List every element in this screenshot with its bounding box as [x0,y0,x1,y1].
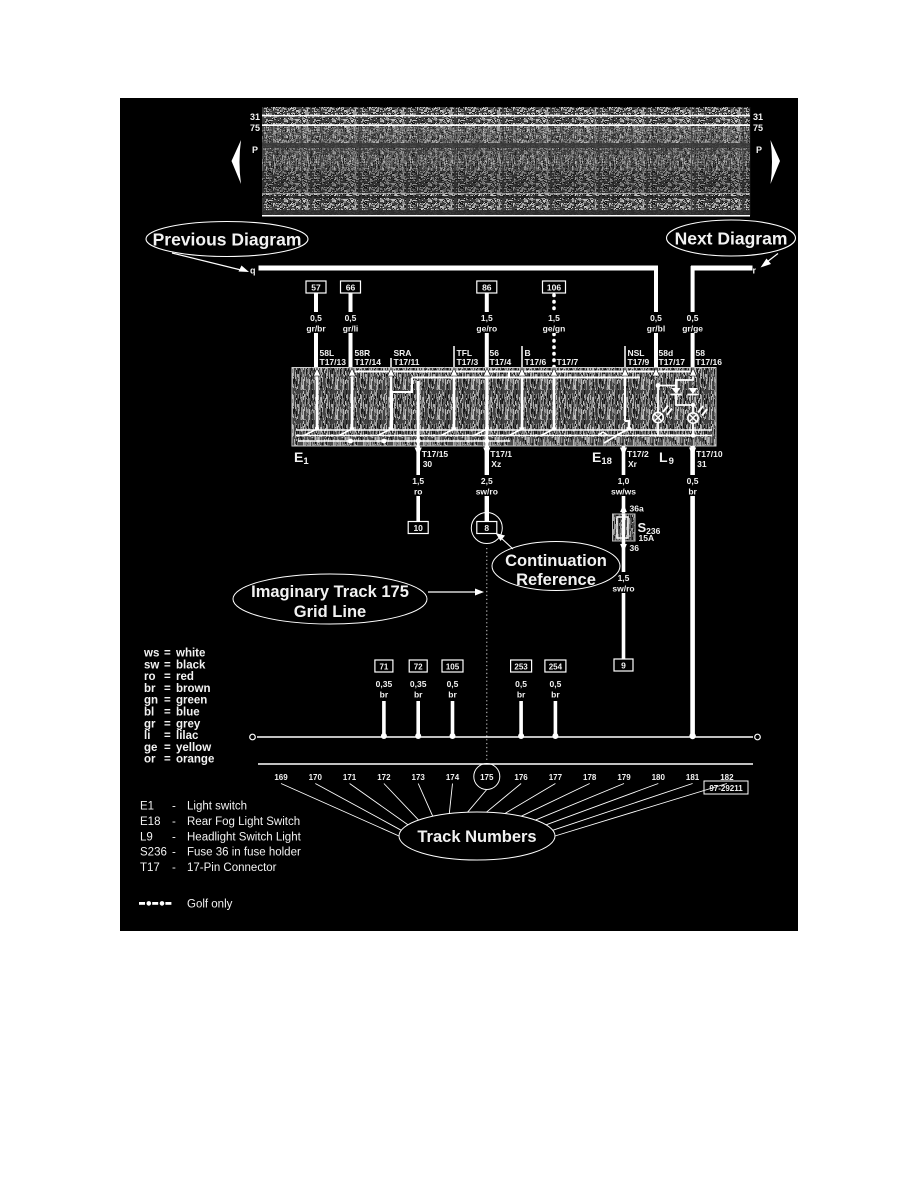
svg-text:ro: ro [414,487,423,497]
svg-text:r: r [753,266,757,276]
svg-text:0,5: 0,5 [515,679,527,689]
svg-text:E1: E1 [140,801,154,813]
svg-text:orange: orange [176,754,214,766]
svg-text:86: 86 [482,283,492,293]
svg-text:31: 31 [250,112,260,122]
svg-text:=: = [164,659,171,671]
svg-text:gr/br: gr/br [306,324,326,334]
svg-text:0,5: 0,5 [687,476,699,486]
svg-text:brown: brown [176,683,211,695]
svg-text:0,5: 0,5 [345,313,357,323]
svg-text:sw/ro: sw/ro [612,584,634,594]
svg-text:T17/4: T17/4 [490,357,512,367]
svg-text:=: = [164,742,171,754]
svg-text:red: red [176,671,194,683]
svg-text:=: = [164,718,171,730]
svg-text:L9: L9 [140,831,153,843]
svg-text:176: 176 [514,773,528,782]
svg-text:Rear Fog Light Switch: Rear Fog Light Switch [187,816,300,828]
svg-text:T17/1: T17/1 [490,449,512,459]
svg-text:57: 57 [311,283,321,293]
svg-text:ge/ro: ge/ro [476,324,497,334]
svg-text:66: 66 [346,283,356,293]
svg-text:17-Pin Connector: 17-Pin Connector [187,862,277,874]
svg-text:-: - [172,801,176,813]
svg-text:=: = [164,707,171,719]
svg-text:yellow: yellow [176,742,211,754]
svg-text:1,0: 1,0 [618,476,630,486]
svg-text:181: 181 [686,773,700,782]
svg-text:0,35: 0,35 [410,679,427,689]
svg-text:72: 72 [414,663,423,672]
svg-text:0,5: 0,5 [687,313,699,323]
svg-text:P: P [252,145,258,155]
svg-text:Light switch: Light switch [187,801,247,813]
svg-text:174: 174 [446,773,460,782]
svg-text:white: white [175,648,205,660]
svg-text:T17: T17 [140,862,160,874]
svg-text:30: 30 [423,459,433,469]
svg-text:-: - [172,862,176,874]
svg-text:71: 71 [379,663,388,672]
svg-text:grey: grey [176,718,201,730]
svg-text:105: 105 [446,663,460,672]
svg-text:Fuse 36 in fuse holder: Fuse 36 in fuse holder [187,847,301,859]
svg-text:gr: gr [144,718,156,730]
svg-text:sw/ws: sw/ws [611,487,636,497]
svg-text:gr/bl: gr/bl [647,324,665,334]
svg-text:gr/li: gr/li [343,324,359,334]
svg-text:ro: ro [144,671,156,683]
svg-text:=: = [164,695,171,707]
svg-text:1,5: 1,5 [548,313,560,323]
svg-text:Imaginary Track 175: Imaginary Track 175 [251,583,409,601]
svg-text:177: 177 [549,773,563,782]
svg-text:1,5: 1,5 [412,476,424,486]
svg-text:Continuation: Continuation [505,552,607,570]
svg-text:S236: S236 [140,847,167,859]
svg-text:36: 36 [630,543,640,553]
svg-text:T17/15: T17/15 [422,449,449,459]
svg-text:-: - [172,816,176,828]
svg-text:sw: sw [144,659,159,671]
svg-text:=: = [164,683,171,695]
svg-text:31: 31 [697,459,707,469]
svg-text:-: - [172,831,176,843]
svg-text:180: 180 [652,773,666,782]
svg-text:T17/6: T17/6 [525,357,547,367]
svg-text:T17/14: T17/14 [355,357,382,367]
svg-text:Golf only: Golf only [187,899,233,911]
svg-text:=: = [164,671,171,683]
svg-text:ge: ge [144,742,157,754]
svg-text:li: li [144,730,150,742]
svg-text:178: 178 [583,773,597,782]
svg-text:green: green [176,695,207,707]
svg-text:175: 175 [480,773,494,782]
svg-text:sw/ro: sw/ro [476,487,498,497]
svg-text:Grid Line: Grid Line [294,603,366,621]
svg-text:=: = [164,754,171,766]
svg-text:8: 8 [484,523,489,533]
svg-text:T17/2: T17/2 [627,449,649,459]
svg-text:-: - [172,847,176,859]
svg-text:106: 106 [547,283,561,293]
svg-text:31: 31 [753,112,763,122]
svg-text:or: or [144,754,156,766]
svg-text:171: 171 [343,773,357,782]
svg-text:bl: bl [144,707,154,719]
svg-text:Xr: Xr [628,459,638,469]
svg-text:P: P [756,145,762,155]
svg-text:T17/13: T17/13 [320,357,347,367]
svg-text:170: 170 [309,773,323,782]
svg-text:Next Diagram: Next Diagram [675,229,788,249]
svg-text:97-29211: 97-29211 [709,784,743,793]
svg-text:br: br [551,690,560,700]
svg-text:0,5: 0,5 [310,313,322,323]
svg-text:br: br [688,487,697,497]
svg-text:36a: 36a [630,504,644,514]
svg-text:0,5: 0,5 [447,679,459,689]
svg-text:173: 173 [412,773,426,782]
svg-text:1,5: 1,5 [618,573,630,583]
svg-text:blue: blue [176,707,200,719]
svg-text:179: 179 [617,773,631,782]
svg-text:T17/16: T17/16 [696,357,723,367]
svg-text:E18: E18 [140,816,160,828]
svg-text:15A: 15A [639,533,655,543]
svg-text:=: = [164,648,171,660]
svg-text:lilac: lilac [176,730,199,742]
svg-text:q: q [250,266,256,276]
svg-text:75: 75 [753,123,763,133]
svg-text:T17/10: T17/10 [696,449,723,459]
svg-text:br: br [144,683,156,695]
svg-text:gr/ge: gr/ge [682,324,703,334]
svg-text:9: 9 [621,661,626,671]
svg-text:br: br [414,690,423,700]
svg-text:Previous Diagram: Previous Diagram [153,230,302,250]
svg-text:br: br [380,690,389,700]
svg-text:ws: ws [143,648,159,660]
svg-text:172: 172 [377,773,391,782]
svg-text:0,5: 0,5 [549,679,561,689]
svg-text:254: 254 [549,663,563,672]
svg-text:10: 10 [413,523,423,533]
svg-text:75: 75 [250,123,260,133]
svg-text:Headlight Switch Light: Headlight Switch Light [187,831,302,843]
svg-text:br: br [448,690,457,700]
svg-text:0,5: 0,5 [650,313,662,323]
svg-text:169: 169 [274,773,288,782]
svg-text:T17/9: T17/9 [628,357,650,367]
svg-text:Reference: Reference [516,571,596,589]
svg-text:br: br [517,690,526,700]
svg-text:T17/3: T17/3 [457,357,479,367]
svg-text:Xz: Xz [491,459,501,469]
svg-text:=: = [164,730,171,742]
svg-text:253: 253 [514,663,528,672]
svg-text:ge/gn: ge/gn [543,324,566,334]
svg-text:1,5: 1,5 [481,313,493,323]
svg-text:T17/17: T17/17 [659,357,686,367]
svg-text:T17/7: T17/7 [557,357,579,367]
svg-text:Track Numbers: Track Numbers [417,828,536,846]
svg-text:T17/11: T17/11 [394,357,420,367]
svg-text:black: black [176,659,206,671]
svg-text:gn: gn [144,695,158,707]
svg-text:2,5: 2,5 [481,476,493,486]
svg-text:0,35: 0,35 [376,679,393,689]
